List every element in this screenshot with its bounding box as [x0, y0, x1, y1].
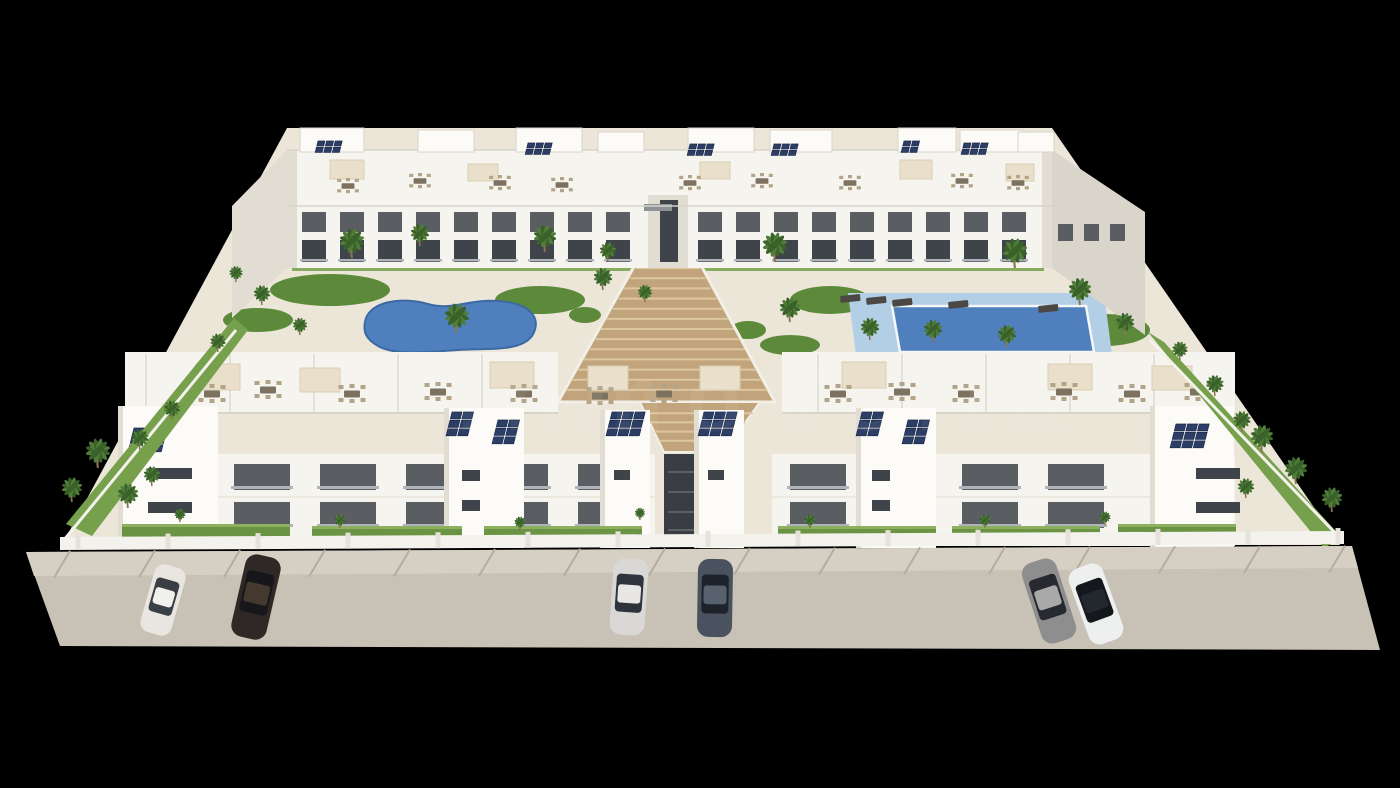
balcony-railing — [1045, 486, 1107, 489]
back-band-right-edge — [1042, 150, 1052, 268]
balcony-railing — [848, 259, 876, 261]
parked-car-slate-blue-sedan-center — [697, 559, 733, 638]
architectural-render: 3D architectural aerial rendering of a w… — [0, 0, 1400, 788]
wall-post — [976, 530, 981, 546]
tower-window — [462, 500, 480, 511]
window-opening — [1084, 224, 1099, 241]
window-opening — [1058, 224, 1073, 241]
wall-post — [526, 532, 531, 548]
penthouse-box — [598, 132, 644, 152]
window-opening — [1002, 212, 1026, 232]
window-opening — [1110, 224, 1125, 241]
tower-window — [872, 470, 890, 481]
window-opening — [568, 240, 592, 262]
right-pool-water — [892, 306, 1094, 352]
window-opening — [964, 240, 988, 262]
hedge-highlight — [122, 524, 290, 527]
wall-post — [256, 533, 261, 549]
pergola-canopy — [900, 160, 932, 179]
hedge-highlight — [952, 526, 1100, 529]
window-opening — [926, 240, 950, 262]
wall-post — [166, 533, 171, 549]
window-opening — [850, 240, 874, 262]
window-opening — [378, 240, 402, 262]
tower-window — [708, 470, 724, 480]
window-opening — [340, 212, 364, 232]
balcony-railing — [528, 259, 556, 261]
balcony-railing — [962, 259, 990, 261]
balcony-railing — [734, 259, 762, 261]
solar-panel-array — [1170, 424, 1209, 448]
penthouse-box — [960, 130, 1024, 152]
wall-post — [1066, 529, 1071, 545]
window-opening — [812, 240, 836, 262]
tower-window — [872, 500, 890, 511]
wall-post — [706, 531, 711, 547]
balcony-railing — [338, 259, 366, 261]
wall-post — [346, 533, 351, 549]
window-opening — [454, 240, 478, 262]
back-band-left-edge — [287, 150, 297, 268]
balcony-railing — [452, 259, 480, 261]
watermark: inmoVella — [456, 348, 1084, 450]
tower-window — [1196, 468, 1240, 479]
wall-sign — [644, 204, 672, 211]
hedge-highlight — [1118, 524, 1236, 527]
penthouse-box — [1018, 132, 1054, 152]
tower-window — [462, 470, 480, 481]
tower-window — [148, 502, 192, 513]
balcony-railing — [959, 486, 1021, 489]
parked-car-silver-sedan-center — [609, 558, 649, 636]
window-opening — [378, 212, 402, 232]
wall-post — [436, 532, 441, 548]
hedge-highlight — [484, 526, 642, 529]
window-opening — [812, 212, 836, 232]
balcony-railing — [566, 259, 594, 261]
tower-window — [614, 470, 630, 480]
pergola-canopy — [468, 164, 498, 181]
window-opening — [736, 212, 760, 232]
window-opening — [850, 212, 874, 232]
balcony-railing — [886, 259, 914, 261]
balcony-railing — [231, 486, 293, 489]
balcony-railing — [810, 259, 838, 261]
penthouse-box — [418, 130, 474, 152]
balcony-railing — [696, 259, 724, 261]
window-opening — [774, 212, 798, 232]
balcony-railing — [787, 486, 849, 489]
window-opening — [302, 212, 326, 232]
wall-post — [616, 531, 621, 547]
window-opening — [568, 212, 592, 232]
balcony-railing — [414, 259, 442, 261]
hedge-highlight — [312, 526, 462, 529]
window-opening — [926, 212, 950, 232]
window-opening — [888, 212, 912, 232]
wall-post — [796, 531, 801, 547]
wall-post — [76, 534, 81, 550]
window-opening — [698, 212, 722, 232]
hedge-highlight — [778, 526, 936, 529]
wall-post — [1246, 528, 1251, 544]
wall-post — [886, 530, 891, 546]
pergola-canopy — [300, 368, 340, 392]
lawn-patch — [569, 307, 601, 323]
balcony-railing — [300, 259, 328, 261]
balcony-railing — [490, 259, 518, 261]
wall-post — [1336, 528, 1341, 544]
window-opening — [454, 212, 478, 232]
balcony-railing — [376, 259, 404, 261]
window-opening — [698, 240, 722, 262]
pergola-canopy — [700, 162, 730, 179]
balcony-railing — [772, 259, 800, 261]
penthouse-box — [516, 128, 582, 152]
window-opening — [888, 240, 912, 262]
window-opening — [492, 240, 516, 262]
tower-window — [1196, 502, 1240, 513]
pergola-canopy — [330, 160, 364, 179]
window-opening — [302, 240, 326, 262]
window-opening — [736, 240, 760, 262]
balcony-railing — [317, 486, 379, 489]
balcony-railing — [924, 259, 952, 261]
window-opening — [492, 212, 516, 232]
wall-post — [1156, 529, 1161, 545]
window-opening — [964, 212, 988, 232]
lawn-patch — [270, 274, 390, 306]
window-opening — [606, 212, 630, 232]
